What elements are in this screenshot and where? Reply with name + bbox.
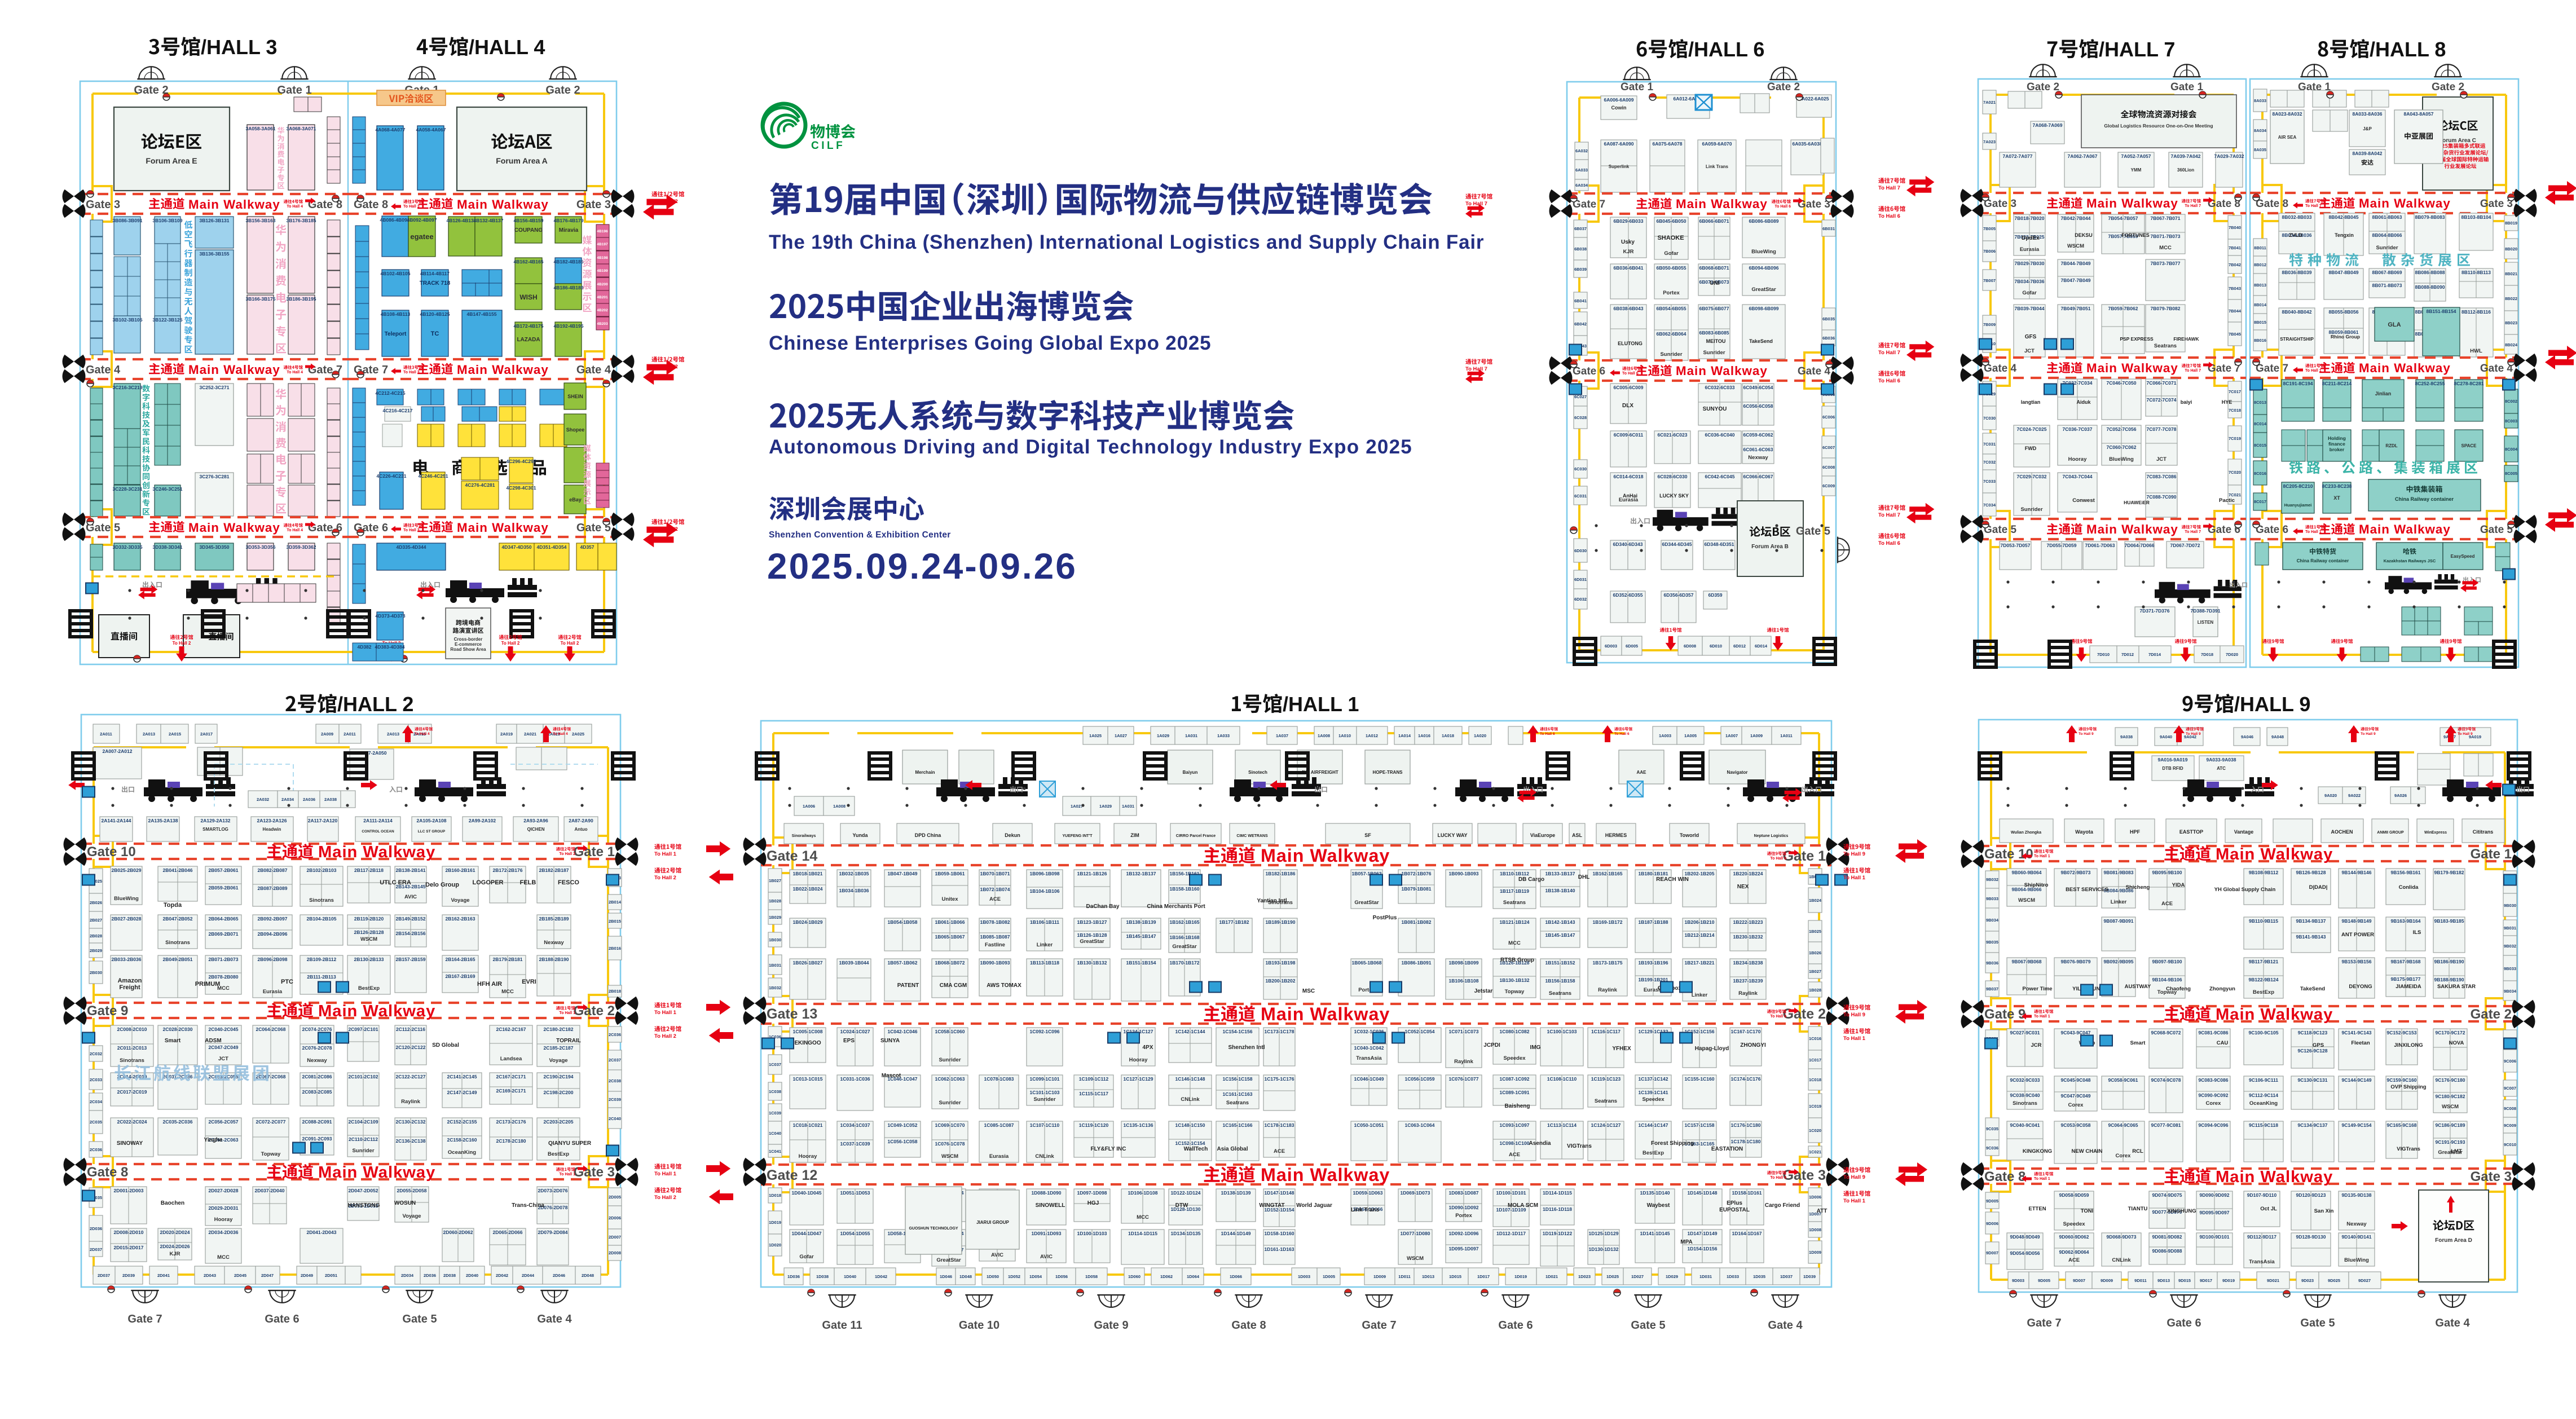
svg-text:1C098-1C100: 1C098-1C100 — [1500, 1140, 1530, 1146]
svg-text:Forum Area C: Forum Area C — [2439, 138, 2476, 144]
svg-text:8B021: 8B021 — [2505, 271, 2517, 276]
svg-text:Voyage: Voyage — [549, 1057, 567, 1064]
svg-text:4B202: 4B202 — [597, 309, 608, 312]
svg-text:Raylink: Raylink — [401, 1099, 421, 1105]
svg-text:1C037: 1C037 — [769, 1062, 781, 1067]
svg-text:2A015: 2A015 — [169, 731, 181, 737]
svg-text:2C076-2C078: 2C076-2C078 — [302, 1045, 332, 1051]
svg-text:4B162-4B165: 4B162-4B165 — [514, 259, 544, 265]
svg-text:3D353-3D356: 3D353-3D356 — [246, 544, 276, 550]
svg-text:Yunda: Yunda — [852, 832, 868, 838]
svg-text:ETTEN: ETTEN — [2028, 1206, 2046, 1212]
svg-text:To Hall 4: To Hall 4 — [553, 732, 568, 736]
svg-text:1C018-1C021: 1C018-1C021 — [793, 1122, 823, 1128]
svg-text:9B037: 9B037 — [1986, 986, 1998, 991]
svg-text:2D008-2D010: 2D008-2D010 — [114, 1229, 144, 1235]
svg-text:9B134-9B137: 9B134-9B137 — [2296, 918, 2326, 924]
svg-text:1C089-1C091: 1C089-1C091 — [1500, 1090, 1530, 1095]
svg-text:VIGTrans: VIGTrans — [1567, 1143, 1592, 1149]
svg-text:1B162-1B165: 1B162-1B165 — [1593, 871, 1623, 876]
svg-text:ShipNitro: ShipNitro — [2024, 882, 2049, 888]
svg-text:JIAMEIDA: JIAMEIDA — [2396, 984, 2421, 990]
svg-text:9D048-9D049: 9D048-9D049 — [2010, 1234, 2040, 1240]
svg-text:1C069-1C070: 1C069-1C070 — [935, 1122, 965, 1128]
svg-text:2C037: 2C037 — [609, 1057, 621, 1063]
svg-text:7B006: 7B006 — [1983, 249, 1996, 254]
svg-text:6D005: 6D005 — [1626, 644, 1638, 649]
svg-text:4B147-4B155: 4B147-4B155 — [467, 311, 497, 317]
svg-text:MPA: MPA — [1680, 1239, 1692, 1245]
svg-text:1B133-1B137: 1B133-1B137 — [1545, 871, 1575, 876]
svg-text:7B047-7B049: 7B047-7B049 — [2061, 277, 2091, 283]
svg-text:6B062-6B064: 6B062-6B064 — [1657, 331, 1686, 337]
svg-text:MCC: MCC — [1137, 1214, 1149, 1220]
svg-text:2B064-2B065: 2B064-2B065 — [209, 916, 239, 922]
svg-text:Chaofeng: Chaofeng — [2166, 986, 2191, 992]
svg-text:Main Walkway: Main Walkway — [1261, 845, 1390, 866]
svg-text:2C152-2C155: 2C152-2C155 — [447, 1119, 477, 1125]
svg-text:1D158-1D160: 1D158-1D160 — [1265, 1231, 1294, 1236]
svg-text:2B092-2B097: 2B092-2B097 — [258, 916, 288, 922]
svg-text:1C085-1C087: 1C085-1C087 — [984, 1122, 1014, 1128]
svg-text:2D007: 2D007 — [609, 1235, 621, 1240]
svg-text:Gofar: Gofar — [799, 1254, 814, 1260]
svg-text:WSCM: WSCM — [941, 1153, 958, 1160]
svg-text:TRACK 718: TRACK 718 — [420, 280, 451, 287]
svg-text:2C056-2C057: 2C056-2C057 — [209, 1119, 239, 1125]
svg-text:YMM: YMM — [2131, 168, 2142, 173]
svg-text:To Hall 9: To Hall 9 — [2079, 732, 2094, 736]
svg-text:To Hall 6: To Hall 6 — [1878, 540, 1900, 547]
svg-text:1C165-1C166: 1C165-1C166 — [1223, 1122, 1253, 1128]
svg-text:9B167-9B168: 9B167-9B168 — [2391, 959, 2421, 964]
svg-text:3C228-3C231: 3C228-3C231 — [113, 486, 143, 492]
svg-text:7C031: 7C031 — [1983, 442, 1996, 447]
svg-text:9D128-9D130: 9D128-9D130 — [2296, 1234, 2326, 1240]
svg-text:Dekun: Dekun — [1005, 832, 1020, 838]
svg-text:6B050-6B055: 6B050-6B055 — [1657, 265, 1686, 271]
svg-text:Huanyujiamei: Huanyujiamei — [2284, 503, 2312, 508]
svg-text:1D017: 1D017 — [1477, 1274, 1490, 1279]
svg-text:9D027: 9D027 — [2358, 1278, 2371, 1283]
svg-text:1C156-1C158: 1C156-1C158 — [1223, 1076, 1253, 1082]
svg-text:9B148-9B149: 9B148-9B149 — [2342, 918, 2372, 924]
svg-text:9C027-9C031: 9C027-9C031 — [2010, 1030, 2040, 1035]
svg-text:1B065-1B067: 1B065-1B067 — [935, 934, 965, 940]
svg-text:To Hall 7: To Hall 7 — [1878, 185, 1900, 191]
svg-text:Portex: Portex — [1455, 1213, 1472, 1219]
svg-text:Gate 10: Gate 10 — [87, 844, 136, 860]
svg-text:8B012: 8B012 — [2254, 262, 2266, 267]
svg-text:1C020: 1C020 — [1809, 1128, 1821, 1133]
svg-text:4A068-4A077: 4A068-4A077 — [376, 127, 406, 133]
svg-text:To Hall 9: To Hall 9 — [1843, 1174, 1865, 1180]
svg-text:1C019: 1C019 — [1809, 1104, 1821, 1109]
svg-text:Smart: Smart — [2130, 1040, 2146, 1046]
svg-text:6C006: 6C006 — [1822, 415, 1835, 420]
svg-text:7A068-7A069: 7A068-7A069 — [2033, 122, 2063, 128]
svg-text:4B132-4B137: 4B132-4B137 — [474, 218, 504, 223]
svg-text:Forum Area D: Forum Area D — [2435, 1237, 2472, 1244]
svg-text:IMG: IMG — [1530, 1045, 1541, 1051]
svg-text:To Hall 4: To Hall 4 — [287, 205, 303, 209]
svg-text:1B145-1B147: 1B145-1B147 — [1126, 933, 1156, 939]
svg-text:Gate 2: Gate 2 — [1783, 1006, 1826, 1022]
svg-text:CIMC WETRANS: CIMC WETRANS — [1236, 834, 1268, 838]
svg-text:1A006: 1A006 — [803, 804, 815, 809]
svg-text:GreatStar: GreatStar — [1751, 287, 1776, 293]
svg-text:Jetstar: Jetstar — [1474, 988, 1493, 994]
svg-text:2D041-2D043: 2D041-2D043 — [307, 1229, 337, 1235]
svg-text:9C036: 9C036 — [1986, 1145, 1998, 1151]
svg-text:9A022: 9A022 — [2348, 793, 2361, 798]
svg-text:2C033: 2C033 — [90, 1077, 102, 1082]
svg-text:4C246-4C251: 4C246-4C251 — [419, 473, 448, 479]
svg-text:1B024: 1B024 — [1809, 898, 1822, 903]
svg-text:1B145-1B147: 1B145-1B147 — [1545, 932, 1575, 938]
svg-text:7B045: 7B045 — [2229, 332, 2241, 337]
svg-text:To Hall 7: To Hall 7 — [2185, 204, 2201, 208]
svg-text:Gate 6: Gate 6 — [1573, 365, 1605, 377]
svg-text:6B094-6B096: 6B094-6B096 — [1749, 265, 1779, 271]
svg-text:/HALL 4: /HALL 4 — [469, 36, 545, 59]
svg-text:1D161-1D163: 1D161-1D163 — [1265, 1246, 1294, 1252]
svg-text:9D006: 9D006 — [1986, 1221, 1998, 1226]
svg-text:To Hall 1: To Hall 1 — [559, 1011, 575, 1015]
svg-text:1C056-1C058: 1C056-1C058 — [888, 1139, 918, 1144]
svg-text:6C066-6C067: 6C066-6C067 — [1743, 474, 1773, 479]
svg-text:JCR: JCR — [2031, 1042, 2041, 1048]
svg-text:Main Walkway: Main Walkway — [2359, 361, 2451, 375]
svg-text:9C115-9C118: 9C115-9C118 — [2249, 1122, 2278, 1128]
svg-text:7B079-7B082: 7B079-7B082 — [2151, 306, 2181, 311]
svg-text:1B170-1B172: 1B170-1B172 — [1170, 960, 1200, 966]
svg-text:To Hall 2: To Hall 2 — [559, 852, 575, 856]
svg-text:Gate 2: Gate 2 — [2432, 81, 2464, 93]
svg-text:To Hall 9: To Hall 9 — [1843, 851, 1865, 857]
svg-text:Linker: Linker — [1037, 942, 1053, 948]
svg-text:Neptune Logistics: Neptune Logistics — [1754, 834, 1789, 838]
svg-text:6D003: 6D003 — [1605, 644, 1617, 649]
svg-text:9B144-9B146: 9B144-9B146 — [2342, 870, 2372, 875]
svg-text:To Hall 4: To Hall 4 — [415, 732, 430, 736]
svg-text:2D045: 2D045 — [234, 1273, 246, 1278]
svg-text:1B065-1B068: 1B065-1B068 — [1352, 960, 1382, 966]
svg-text:1D029: 1D029 — [1666, 1274, 1678, 1279]
svg-text:7A062-7A067: 7A062-7A067 — [2068, 153, 2098, 159]
svg-text:Gate 7: Gate 7 — [127, 1313, 162, 1325]
svg-text:To Hall 6: To Hall 6 — [1540, 732, 1555, 736]
svg-text:1B187-1B188: 1B187-1B188 — [1639, 919, 1668, 925]
svg-text:3B166-3B175: 3B166-3B175 — [246, 296, 276, 302]
svg-text:1C144-1C147: 1C144-1C147 — [1639, 1122, 1668, 1128]
svg-text:HPF: HPF — [2130, 829, 2141, 835]
svg-text:Link Trans: Link Trans — [1351, 1207, 1379, 1213]
svg-text:1C038: 1C038 — [769, 1089, 781, 1094]
svg-text:ANT POWER: ANT POWER — [2341, 932, 2374, 938]
svg-text:2D034-2D036: 2D034-2D036 — [209, 1229, 239, 1235]
svg-text:Usky: Usky — [1621, 239, 1635, 245]
svg-text:Main Walkway: Main Walkway — [1261, 1004, 1390, 1024]
svg-text:Sunrider: Sunrider — [2020, 506, 2042, 513]
svg-text:7D064-7D066: 7D064-7D066 — [2125, 543, 2155, 548]
svg-text:1C071-1C073: 1C071-1C073 — [1449, 1029, 1479, 1034]
svg-text:6D359: 6D359 — [1708, 592, 1722, 598]
svg-text:9A048: 9A048 — [2271, 734, 2284, 739]
svg-text:9D107-9D110: 9D107-9D110 — [2247, 1192, 2277, 1198]
svg-text:9B033: 9B033 — [2504, 966, 2516, 971]
svg-text:Corex: Corex — [2116, 1153, 2132, 1159]
svg-text:9C081-9C086: 9C081-9C086 — [2199, 1030, 2229, 1035]
svg-text:1B068-1B072: 1B068-1B072 — [935, 960, 965, 966]
svg-text:E-commerce: E-commerce — [455, 642, 482, 647]
svg-text:1B072-1B076: 1B072-1B076 — [1402, 871, 1432, 876]
svg-text:6C049-6C054: 6C049-6C054 — [1743, 385, 1773, 390]
svg-text:RTSB Group: RTSB Group — [1500, 957, 1534, 963]
svg-text:Gate 4: Gate 4 — [2435, 1317, 2470, 1329]
svg-text:Gate 8: Gate 8 — [87, 1165, 128, 1180]
svg-text:8B055-8B056: 8B055-8B056 — [2329, 309, 2359, 315]
svg-text:1B206-1B210: 1B206-1B210 — [1685, 919, 1715, 925]
svg-text:2B160-2B161: 2B160-2B161 — [446, 867, 475, 873]
svg-text:1C148-1C150: 1C148-1C150 — [1175, 1122, 1205, 1128]
svg-text:8B061-8B063: 8B061-8B063 — [2372, 214, 2402, 220]
svg-text:Navigator: Navigator — [1727, 770, 1748, 775]
svg-text:9C141-9C143: 9C141-9C143 — [2342, 1030, 2372, 1035]
svg-text:3B102-3B105: 3B102-3B105 — [113, 317, 143, 323]
svg-text:San Xin: San Xin — [2314, 1208, 2334, 1214]
svg-text:4B198: 4B198 — [597, 256, 608, 260]
svg-text:1D052: 1D052 — [1008, 1274, 1020, 1279]
svg-text:9C094-9C096: 9C094-9C096 — [2199, 1122, 2229, 1128]
svg-text:Eurasia: Eurasia — [989, 1153, 1009, 1160]
svg-text:6A032: 6A032 — [1575, 148, 1588, 153]
svg-text:2D043: 2D043 — [204, 1273, 216, 1278]
svg-text:1D054-1D055: 1D054-1D055 — [840, 1231, 870, 1236]
svg-text:1A018: 1A018 — [1442, 733, 1454, 738]
svg-text:9B110-9B115: 9B110-9B115 — [2249, 918, 2278, 924]
svg-text:To Hall 1: To Hall 1 — [2305, 530, 2322, 534]
svg-text:BlueWing: BlueWing — [114, 896, 139, 902]
svg-text:1C127-1C129: 1C127-1C129 — [1124, 1076, 1153, 1082]
svg-text:1B193-1B196: 1B193-1B196 — [1639, 960, 1668, 966]
svg-text:1C124-1C127: 1C124-1C127 — [1591, 1122, 1621, 1128]
svg-text:Asendia: Asendia — [1529, 1140, 1551, 1147]
svg-text:2B030: 2B030 — [90, 970, 102, 975]
svg-text:7B007: 7B007 — [1983, 278, 1996, 283]
svg-text:Amazon: Amazon — [118, 977, 142, 984]
svg-text:2B028: 2B028 — [90, 933, 102, 938]
svg-text:2025.09.24-09.26: 2025.09.24-09.26 — [767, 546, 1077, 587]
svg-text:2C083-2C085: 2C083-2C085 — [302, 1089, 332, 1095]
svg-text:PATENT: PATENT — [897, 982, 919, 989]
svg-text:1B026: 1B026 — [1809, 950, 1821, 955]
svg-text:1D033: 1D033 — [1727, 1274, 1739, 1279]
svg-text:6C042-6C045: 6C042-6C045 — [1705, 474, 1735, 479]
svg-text:DB Cargo: DB Cargo — [1518, 876, 1544, 883]
svg-text:2D036: 2D036 — [90, 1226, 102, 1231]
svg-text:Linker: Linker — [2111, 899, 2127, 905]
svg-text:2B164-2B165: 2B164-2B165 — [446, 957, 475, 962]
svg-text:BEST SERVICES: BEST SERVICES — [2066, 887, 2108, 893]
svg-text:Gofar: Gofar — [2022, 290, 2037, 296]
svg-text:8B110-8B113: 8B110-8B113 — [2461, 270, 2491, 275]
svg-text:2C040-2C045: 2C040-2C045 — [209, 1026, 239, 1032]
svg-text:9C035: 9C035 — [1986, 1126, 1998, 1131]
svg-text:6C014-6C018: 6C014-6C018 — [1614, 474, 1644, 479]
svg-text:1D009: 1D009 — [1373, 1274, 1386, 1279]
svg-text:2C022-2C024: 2C022-2C024 — [117, 1119, 147, 1125]
svg-text:8B032-8B033: 8B032-8B033 — [2282, 214, 2312, 220]
svg-text:Main Walkway: Main Walkway — [318, 1002, 435, 1020]
svg-text:6B086-6B089: 6B086-6B089 — [1749, 218, 1779, 224]
svg-text:6B068-6B071: 6B068-6B071 — [1699, 265, 1729, 271]
svg-text:9B033: 9B033 — [1986, 896, 1998, 901]
svg-text:4B196: 4B196 — [597, 230, 608, 233]
svg-text:7C024-7C025: 7C024-7C025 — [2017, 426, 2047, 432]
svg-text:HERMES: HERMES — [1605, 832, 1627, 838]
svg-text:1C175-1C176: 1C175-1C176 — [1265, 1076, 1294, 1082]
svg-text:D|DAD|: D|DAD| — [2309, 884, 2328, 891]
svg-text:1D042: 1D042 — [875, 1274, 887, 1279]
svg-text:TIANTU: TIANTU — [2128, 1206, 2148, 1212]
svg-text:To Hall 1: To Hall 1 — [2034, 1015, 2050, 1019]
svg-text:2C035-2C036: 2C035-2C036 — [163, 1119, 193, 1125]
svg-text:2C040: 2C040 — [609, 1116, 621, 1121]
svg-text:6B045-6B050: 6B045-6B050 — [1657, 218, 1686, 224]
svg-text:7B071-7B073: 7B071-7B073 — [2151, 233, 2181, 239]
svg-text:2C101-2C102: 2C101-2C102 — [349, 1074, 378, 1079]
svg-text:1B151-1B152: 1B151-1B152 — [1545, 960, 1575, 966]
svg-text:Main Walkway: Main Walkway — [2216, 1168, 2333, 1186]
svg-text:To Hall 1: To Hall 1 — [654, 1010, 677, 1016]
svg-text:2B104-2B105: 2B104-2B105 — [307, 916, 337, 922]
svg-text:To Hall 6: To Hall 6 — [1622, 372, 1639, 376]
svg-text:9B179-9B182: 9B179-9B182 — [2434, 870, 2464, 875]
svg-text:CNLink: CNLink — [1181, 1096, 1200, 1103]
svg-text:1C005-1C008: 1C005-1C008 — [793, 1029, 823, 1034]
svg-text:1B030: 1B030 — [769, 937, 781, 942]
svg-text:Sunrider: Sunrider — [352, 1148, 374, 1154]
svg-text:1C152-1C154: 1C152-1C154 — [1175, 1140, 1205, 1146]
svg-text:QIANYU SUPER: QIANYU SUPER — [548, 1140, 592, 1147]
svg-text:PRIMUM: PRIMUM — [195, 981, 221, 988]
svg-text:Cowin: Cowin — [1611, 105, 1627, 111]
svg-text:1D083-1D087: 1D083-1D087 — [1449, 1190, 1479, 1196]
svg-text:China Railway container: China Railway container — [2395, 496, 2454, 502]
svg-text:1C050-1C051: 1C050-1C051 — [1354, 1122, 1384, 1128]
svg-text:1B098-1B099: 1B098-1B099 — [1449, 960, 1479, 966]
svg-text:7D055-7D059: 7D055-7D059 — [2047, 543, 2077, 548]
svg-text:2A032: 2A032 — [257, 797, 269, 802]
svg-text:2D034: 2D034 — [401, 1273, 414, 1278]
svg-text:1D141-1D145: 1D141-1D145 — [1640, 1231, 1670, 1236]
svg-text:To Hall 7: To Hall 7 — [1465, 366, 1487, 372]
svg-text:YH Global Supply Chain: YH Global Supply Chain — [2214, 887, 2276, 893]
svg-text:7D010: 7D010 — [2097, 652, 2110, 657]
svg-text:6A087-6A090: 6A087-6A090 — [1604, 141, 1634, 147]
svg-text:Raylink: Raylink — [1598, 987, 1618, 993]
svg-text:4B108-4B113: 4B108-4B113 — [381, 311, 411, 317]
svg-text:1A037: 1A037 — [1276, 733, 1288, 738]
svg-text:1B142-1B143: 1B142-1B143 — [1545, 919, 1575, 925]
svg-text:9C006: 9C006 — [2504, 1059, 2516, 1064]
svg-text:1D015: 1D015 — [1449, 1274, 1461, 1279]
svg-text:2A117-2A120: 2A117-2A120 — [308, 818, 338, 823]
svg-text:To Hall 9: To Hall 9 — [2458, 732, 2473, 736]
svg-text:7B044-7B049: 7B044-7B049 — [2061, 261, 2091, 266]
svg-text:2A99-2A102: 2A99-2A102 — [469, 818, 496, 823]
svg-text:8C002: 8C002 — [2505, 399, 2517, 404]
svg-text:1B047-1B049: 1B047-1B049 — [888, 871, 918, 876]
svg-text:1A020: 1A020 — [1474, 733, 1486, 738]
svg-text:China Merchants Port: China Merchants Port — [1147, 904, 1205, 910]
svg-text:9B141-9B143: 9B141-9B143 — [2296, 934, 2326, 940]
svg-text:3B136-3B155: 3B136-3B155 — [200, 251, 230, 257]
svg-text:6B042: 6B042 — [1574, 321, 1587, 327]
svg-text:8B103-8B104: 8B103-8B104 — [2461, 214, 2491, 220]
svg-text:1C017: 1C017 — [1809, 1057, 1821, 1063]
svg-text:1D048: 1D048 — [959, 1274, 972, 1279]
svg-text:1D051-1D053: 1D051-1D053 — [840, 1190, 870, 1196]
svg-text:Wayota: Wayota — [2075, 829, 2094, 835]
svg-text:9B030: 9B030 — [2504, 903, 2516, 908]
svg-text:8C013: 8C013 — [2254, 400, 2266, 405]
svg-text:Merchain: Merchain — [915, 770, 935, 775]
svg-text:EUPOSTAL: EUPOSTAL — [1719, 1207, 1750, 1213]
svg-text:Hooray: Hooray — [1129, 1057, 1148, 1063]
svg-text:Superlink: Superlink — [1609, 164, 1630, 169]
svg-text:1B162-1B165: 1B162-1B165 — [1170, 919, 1200, 925]
svg-text:2A013: 2A013 — [143, 731, 155, 737]
svg-text:6C007: 6C007 — [1822, 445, 1835, 450]
svg-text:9C176-9C180: 9C176-9C180 — [2436, 1077, 2465, 1083]
svg-text:8C233-8C238: 8C233-8C238 — [2322, 483, 2352, 489]
svg-text:AVIC: AVIC — [1040, 1254, 1053, 1260]
svg-text:9D140-9D141: 9D140-9D141 — [2342, 1234, 2372, 1240]
svg-text:2B109-2B112: 2B109-2B112 — [307, 957, 337, 962]
svg-text:HWL: HWL — [2470, 348, 2482, 354]
svg-text:9B060-9B064: 9B060-9B064 — [2012, 870, 2042, 875]
svg-text:7B042: 7B042 — [2229, 262, 2241, 267]
svg-text:2C011-2C013: 2C011-2C013 — [117, 1045, 147, 1051]
svg-text:Main Walkway: Main Walkway — [2359, 196, 2451, 210]
svg-text:Sunrider: Sunrider — [939, 1057, 961, 1063]
svg-text:CMA CGM: CMA CGM — [940, 982, 967, 989]
svg-text:HGJ: HGJ — [1087, 1200, 1099, 1206]
svg-text:1A031: 1A031 — [1185, 733, 1197, 738]
svg-text:2D079-2D084: 2D079-2D084 — [538, 1229, 568, 1235]
svg-text:HUAWEiER: HUAWEiER — [2124, 500, 2150, 505]
svg-text:7C077-7C078: 7C077-7C078 — [2147, 426, 2177, 432]
svg-text:9D095-9D097: 9D095-9D097 — [2200, 1210, 2230, 1215]
svg-text:Main Walkway: Main Walkway — [2086, 522, 2178, 536]
svg-text:1D005: 1D005 — [1323, 1274, 1335, 1279]
svg-text:Gate 4: Gate 4 — [86, 364, 121, 376]
svg-text:1C157-1C158: 1C157-1C158 — [1685, 1122, 1715, 1128]
svg-text:1A011: 1A011 — [1780, 733, 1793, 738]
svg-text:9B092-9B095: 9B092-9B095 — [2104, 959, 2134, 964]
svg-text:2D040: 2D040 — [466, 1273, 478, 1278]
svg-text:Gate 10: Gate 10 — [959, 1319, 999, 1332]
svg-text:Gate 3: Gate 3 — [576, 199, 611, 211]
svg-text:2B111-2B113: 2B111-2B113 — [307, 974, 336, 980]
svg-text:9C053-9C058: 9C053-9C058 — [2061, 1122, 2091, 1128]
svg-text:7B041: 7B041 — [2229, 245, 2241, 250]
svg-text:Gate 1: Gate 1 — [2170, 81, 2204, 93]
svg-text:9C077-9C081: 9C077-9C081 — [2151, 1122, 2181, 1128]
svg-text:1C107-1C110: 1C107-1C110 — [1030, 1122, 1060, 1128]
